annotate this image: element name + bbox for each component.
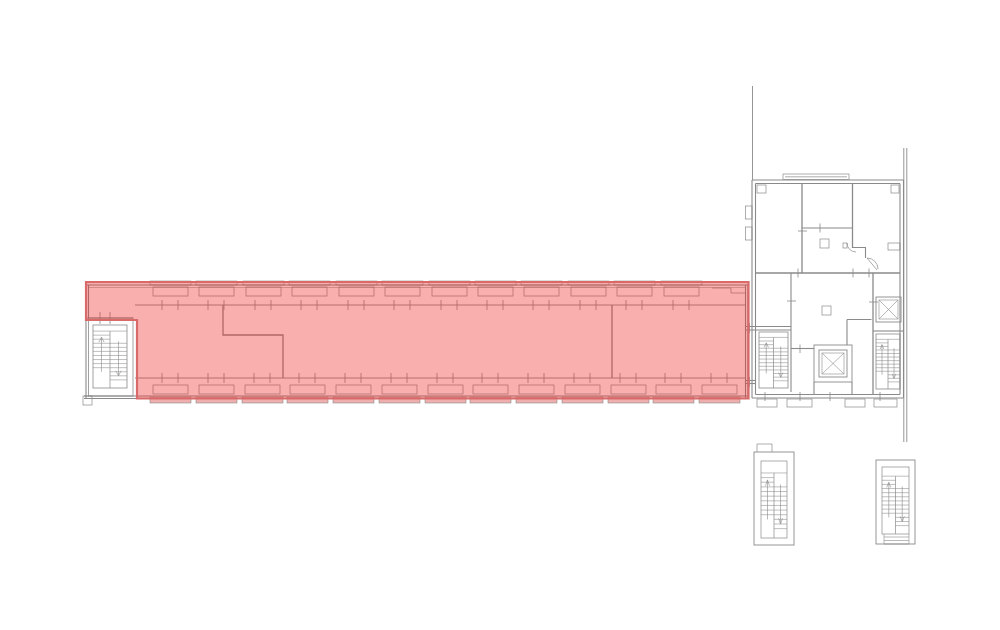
detached-stairwell-right [876,460,915,544]
floor-plan-canvas [0,0,1000,630]
elevator-shaft-central [814,345,852,382]
east-building-details [746,174,901,407]
door-ticks [750,224,881,402]
east-building-stairwell-right [876,334,900,389]
east-building-stairwell-left [759,332,788,388]
floor-plan-svg [0,0,1000,630]
east-building-walls [746,180,904,398]
detached-stairwell-left [754,444,794,545]
elevator-shaft-east [876,297,901,322]
highlighted-wing-overlay[interactable] [86,282,749,399]
west-stairwell [89,312,134,396]
